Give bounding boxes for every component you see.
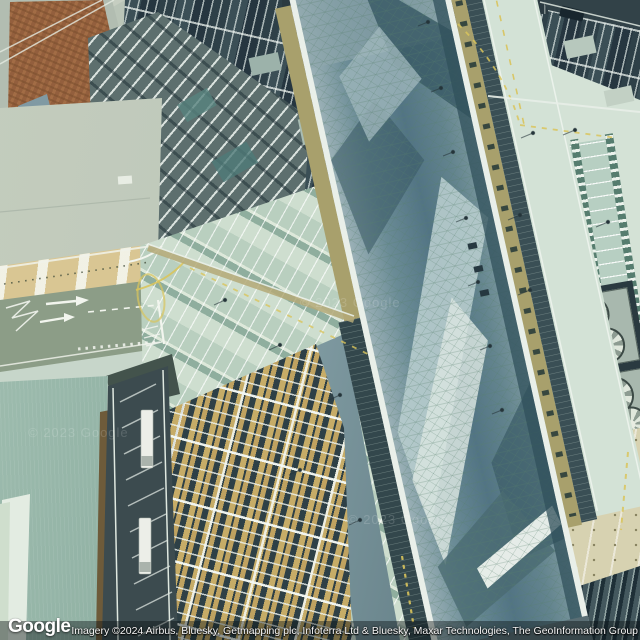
attribution-text: Imagery ©2024 Airbus, Bluesky, Getmappin…: [71, 625, 638, 637]
tile-watermark: © 2023 Google: [300, 295, 401, 310]
satellite-map-canvas[interactable]: © 2023 Google © 2023 Google © 2023 Googl…: [0, 0, 640, 640]
tile-watermark: © 2023 Google: [348, 512, 449, 527]
tile-watermark: © 2023 Google: [28, 425, 129, 440]
attribution-bar: Imagery ©2024 Airbus, Bluesky, Getmappin…: [0, 621, 640, 640]
google-logo[interactable]: Google: [8, 616, 70, 638]
